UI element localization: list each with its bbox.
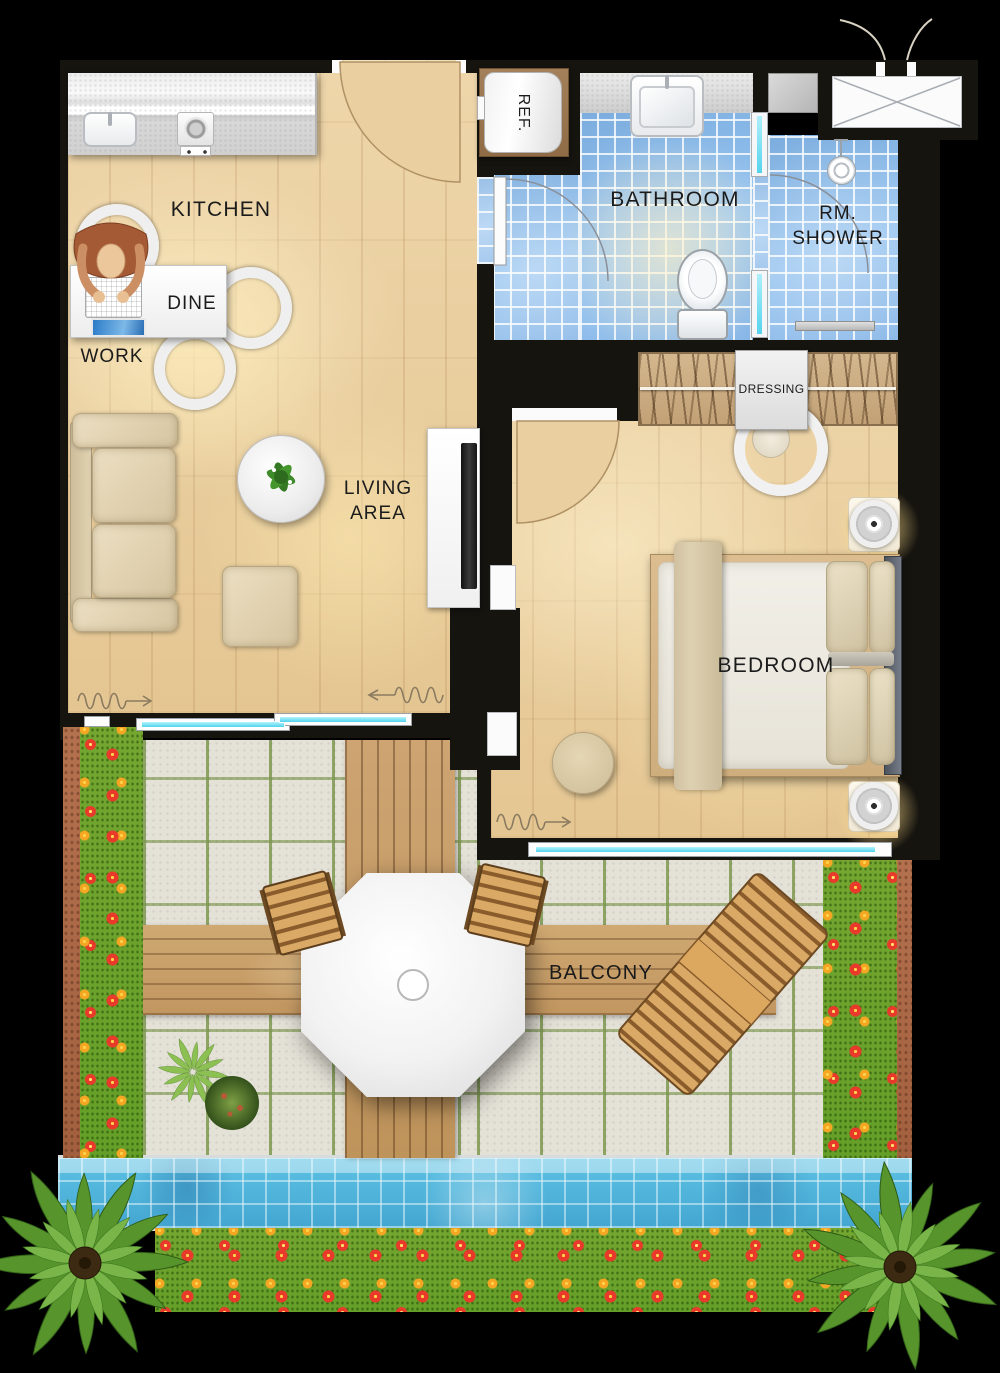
entrance-jamb-left [876, 62, 885, 76]
door-jamb-right [456, 60, 466, 73]
dressing-label-box: DRESSING [735, 350, 808, 430]
stove-controls [180, 146, 211, 156]
ottoman [222, 566, 298, 647]
bedroom-door-threshold [512, 408, 617, 421]
wall-niche-lower [487, 712, 517, 756]
chair-dine-bottom [154, 328, 236, 410]
shower-glass-panel-top [751, 112, 768, 177]
living-window-glass-1 [141, 721, 285, 728]
bathroom-door-gap [477, 177, 494, 264]
flowerbed-left-soil [63, 727, 80, 1158]
sofa-back [70, 419, 92, 626]
pillow-4 [869, 668, 895, 765]
shower-room-label-line1: RM. [768, 202, 908, 227]
toilet-tank [677, 309, 728, 340]
work-label: WORK [72, 345, 152, 370]
living-area-label-line1: LIVING [328, 477, 428, 502]
stove-cooktop [177, 112, 214, 146]
coffee-table [237, 435, 325, 523]
shower-shelf [768, 73, 818, 113]
wall-left [60, 60, 68, 740]
bedroom-pouf [552, 732, 614, 794]
swimming-pool [58, 1155, 912, 1231]
pillow-3 [826, 668, 868, 765]
bathroom-sink-basin [639, 86, 695, 128]
flowerbed-bottom [155, 1228, 908, 1312]
wall-right [898, 60, 940, 860]
kitchen-sink [83, 112, 137, 147]
entrance-door-arcs [840, 19, 932, 60]
dressing-label: DRESSING [739, 382, 805, 398]
pillow-2 [869, 561, 895, 654]
fridge-label: REF. [514, 93, 532, 132]
lamp-2-icon [850, 782, 898, 830]
sofa-cushion-2 [92, 524, 176, 598]
shower-glass-panel-bottom [751, 270, 768, 338]
pool-shallow-edge [58, 1158, 912, 1173]
wall-niche-upper [490, 565, 516, 610]
flowerbed-right [823, 860, 897, 1158]
laptop-screen [91, 318, 146, 337]
fridge-handle [477, 96, 485, 120]
tv-screen [461, 443, 477, 589]
bathroom-sink [630, 75, 704, 137]
pillow-1 [826, 561, 868, 654]
bedroom-label: BEDROOM [706, 652, 846, 679]
laptop [85, 277, 142, 318]
toilet-bowl [677, 249, 728, 313]
entry-door-gap [342, 60, 456, 74]
living-area-label: LIVING AREA [328, 477, 428, 526]
living-window-sill [84, 716, 110, 727]
flowerbed-left [80, 727, 143, 1158]
sofa-armrest-top [72, 413, 178, 448]
bedroom-window-glass [535, 846, 876, 853]
kitchen-label: KITCHEN [151, 196, 291, 223]
sofa-armrest-bottom [72, 598, 178, 632]
shower-head-icon [827, 156, 856, 185]
door-jamb-left [332, 60, 342, 73]
balcony-label: BALCONY [531, 960, 671, 986]
refrigerator: REF. [484, 72, 562, 153]
towel-rail [795, 321, 875, 331]
parasol-pole [397, 969, 429, 1001]
bathroom-label: BATHROOM [605, 186, 745, 213]
entrance-jamb-right [907, 62, 916, 76]
light-glow-bathroom [560, 140, 780, 360]
shower-room-label: RM. SHOWER [768, 202, 908, 251]
living-window-glass-2 [279, 716, 407, 723]
shower-door-gap [753, 177, 768, 270]
sofa-cushion-1 [92, 448, 176, 523]
living-area-label-line2: AREA [328, 502, 428, 527]
flowerbed-right-soil [897, 860, 912, 1158]
lamp-1-icon [850, 500, 898, 548]
shower-room-label-line2: SHOWER [768, 227, 908, 252]
entrance-shaft-box [832, 76, 962, 128]
floor-plan: REF. DRESSING [0, 0, 1000, 1373]
dine-label: DINE [157, 292, 227, 317]
